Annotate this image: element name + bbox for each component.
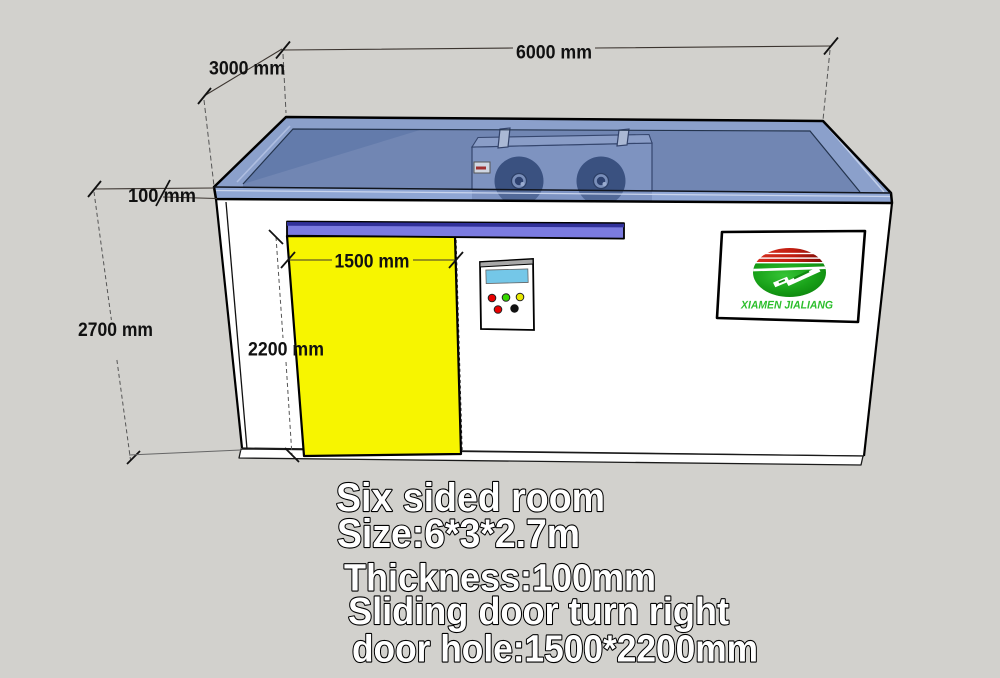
- svg-text:Size:6*3*2.7m: Size:6*3*2.7m: [337, 512, 580, 556]
- svg-text:2200 mm: 2200 mm: [248, 340, 324, 361]
- svg-text:3000 mm: 3000 mm: [209, 59, 285, 80]
- svg-text:1500 mm: 1500 mm: [335, 252, 410, 273]
- svg-text:door hole:1500*2200mm: door hole:1500*2200mm: [352, 629, 758, 671]
- svg-text:100 mm: 100 mm: [128, 186, 196, 207]
- svg-text:6000 mm: 6000 mm: [516, 43, 592, 64]
- svg-text:XIAMEN JIALIANG: XIAMEN JIALIANG: [740, 300, 833, 312]
- svg-text:2700 mm: 2700 mm: [78, 320, 153, 341]
- svg-text:Sliding door turn right: Sliding door turn right: [348, 591, 729, 633]
